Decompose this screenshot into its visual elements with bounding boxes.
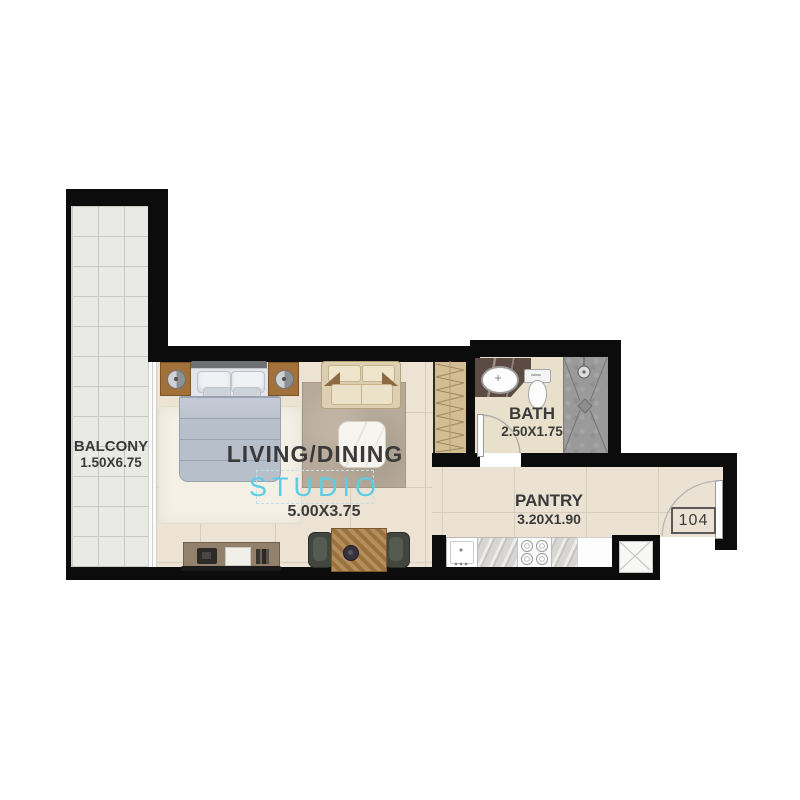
console-shelf-icon	[181, 566, 281, 571]
unit-number: 104	[679, 512, 709, 530]
wall-bath-left	[466, 357, 475, 453]
bath-label: BATH 2.50X1.75	[482, 404, 582, 439]
counter-icon	[477, 537, 519, 569]
books-icon	[256, 549, 269, 564]
floor-plan: 104	[0, 0, 800, 800]
washbasin-icon	[481, 366, 519, 394]
balcony-name: BALCONY	[62, 438, 160, 455]
wall-entry-top	[621, 453, 737, 467]
papers-icon	[225, 547, 251, 566]
balcony-label: BALCONY 1.50X6.75	[62, 438, 160, 471]
vase-icon	[343, 545, 359, 561]
living-dining-name: LIVING/DINING	[215, 441, 415, 467]
living-dining-dims: 5.00X3.75	[264, 503, 384, 521]
shaft-icon	[619, 541, 653, 573]
balcony-floor-tiles	[71, 206, 149, 567]
balcony-dims: 1.50X6.75	[62, 455, 160, 471]
nightstand-icon	[160, 362, 191, 396]
wall-right	[723, 453, 737, 550]
fridge-counter-icon	[577, 537, 614, 569]
tv-icon	[197, 548, 217, 564]
bath-dims: 2.50X1.75	[482, 424, 582, 440]
stove-icon	[517, 537, 553, 569]
wardrobe-icon	[433, 360, 468, 455]
counter-icon	[551, 537, 579, 569]
wall-living-top	[148, 346, 480, 362]
pantry-dims: 3.20X1.90	[499, 511, 599, 527]
lamp-icon	[275, 370, 294, 389]
unit-number-badge: 104	[671, 507, 716, 534]
wall-kitchen-stub	[432, 535, 446, 580]
wall-bath-top	[470, 340, 621, 357]
pantry-label: PANTRY 3.20X1.90	[499, 491, 599, 527]
nightstand-icon	[268, 362, 299, 396]
wall-bath-right	[608, 340, 621, 467]
wall-left	[66, 189, 71, 580]
studio-watermark: STUDIO	[256, 470, 374, 504]
entry-door-icon	[715, 480, 723, 539]
kitchen-sink-icon	[446, 537, 479, 569]
wall-balcony-right	[148, 189, 168, 362]
lamp-icon	[167, 370, 186, 389]
chair-icon	[384, 532, 410, 568]
dining-table-icon	[331, 528, 387, 572]
bath-name: BATH	[482, 404, 582, 424]
wall-bath-bottom-left	[432, 453, 480, 467]
pantry-name: PANTRY	[499, 491, 599, 511]
wall-bath-bottom-right	[521, 453, 621, 467]
sofa-icon	[321, 361, 401, 409]
